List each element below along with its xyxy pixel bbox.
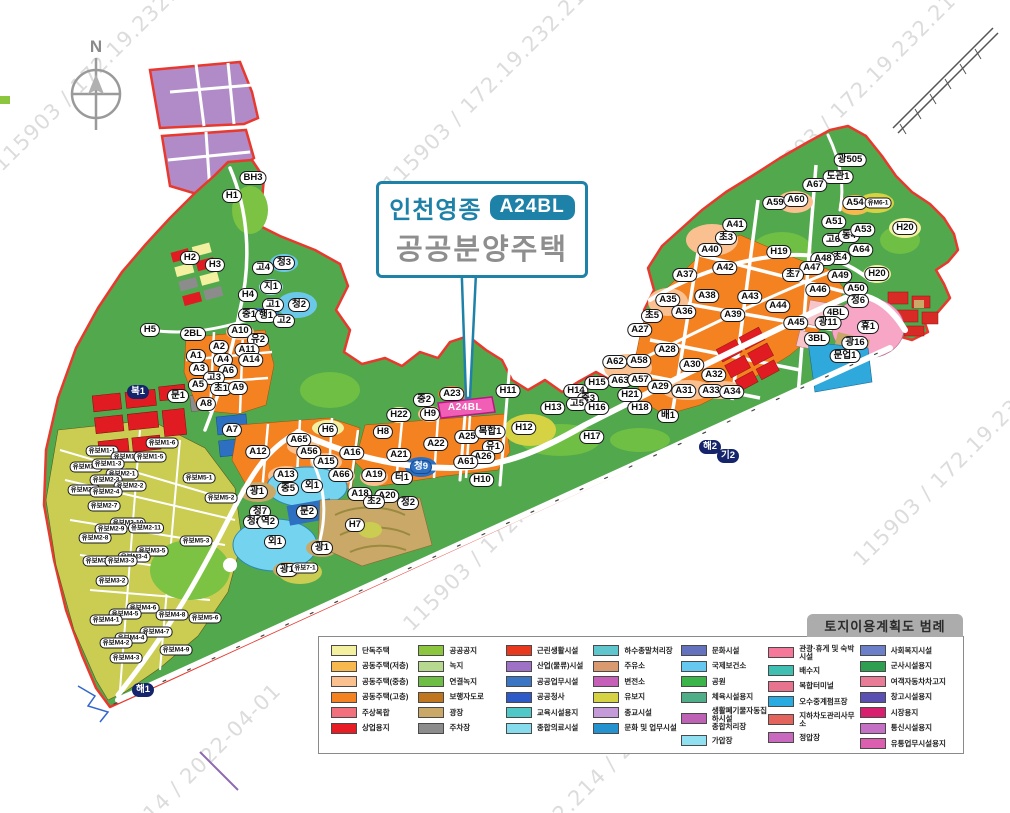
legend-item: 문화시설 bbox=[681, 645, 768, 656]
legend-swatch bbox=[860, 676, 886, 687]
legend-label: 생활폐기물자동집하시설 종합처리장 bbox=[712, 707, 768, 731]
legend-item: 종합의료시설 bbox=[506, 723, 593, 734]
legend-columns: 단독주택공동주택(저층)공동주택(중층)공동주택(고층)주상복합상업용지공공공지… bbox=[331, 645, 963, 749]
legend-swatch bbox=[768, 647, 794, 658]
legend-swatch bbox=[506, 707, 532, 718]
legend-label: 단독주택 bbox=[362, 647, 390, 655]
legend-label: 군사시설용지 bbox=[891, 662, 932, 670]
callout-region: 인천영종 bbox=[389, 190, 481, 225]
legend-column: 관광·휴게 및 숙박시설배수지복합터미널오수중계펌프장지하차도관리사무소정압장 bbox=[768, 645, 859, 749]
legend-item: 공공공지 bbox=[418, 645, 505, 656]
legend-swatch bbox=[860, 645, 886, 656]
legend-item: 공동주택(중층) bbox=[331, 676, 418, 687]
legend-label: 녹지 bbox=[449, 662, 463, 670]
legend-item: 관광·휴게 및 숙박시설 bbox=[768, 645, 859, 661]
legend-item: 오수중계펌프장 bbox=[768, 696, 859, 707]
legend-label: 시장용지 bbox=[891, 709, 919, 717]
legend-swatch bbox=[593, 707, 619, 718]
legend-box: 토지이용계획도 범례 단독주택공동주택(저층)공동주택(중층)공동주택(고층)주… bbox=[318, 636, 964, 754]
legend-label: 국제보건소 bbox=[712, 662, 747, 670]
legend-item: 배수지 bbox=[768, 665, 859, 676]
legend-label: 하수종말처리장 bbox=[624, 647, 672, 655]
legend-label: 공공공지 bbox=[449, 647, 477, 655]
legend-item: 공공업무시설 bbox=[506, 676, 593, 687]
legend-swatch bbox=[768, 681, 794, 692]
legend-item: 국제보건소 bbox=[681, 661, 768, 672]
legend-label: 복합터미널 bbox=[799, 682, 834, 690]
legend-swatch bbox=[681, 692, 707, 703]
legend-column: 근린생활시설산업(물류)시설공공업무시설공공청사교육시설용지종합의료시설 bbox=[506, 645, 593, 749]
legend-item: 산업(물류)시설 bbox=[506, 661, 593, 672]
legend-item: 공동주택(저층) bbox=[331, 661, 418, 672]
legend-item: 주차장 bbox=[418, 723, 505, 734]
legend-label: 통신시설용지 bbox=[891, 724, 932, 732]
legend-item: 유보지 bbox=[593, 692, 680, 703]
legend-label: 사회복지시설 bbox=[891, 647, 932, 655]
legend-swatch bbox=[506, 676, 532, 687]
legend-item: 여객자동차차고지 bbox=[860, 676, 963, 687]
legend-column: 단독주택공동주택(저층)공동주택(중층)공동주택(고층)주상복합상업용지 bbox=[331, 645, 418, 749]
callout-title: 공공분양주택 bbox=[387, 226, 577, 268]
land-use-map-page: 115903 / 172.19.232.214 / 2022-04-011159… bbox=[0, 0, 1010, 813]
legend-item: 공동주택(고층) bbox=[331, 692, 418, 703]
legend-swatch bbox=[418, 707, 444, 718]
legend-swatch bbox=[860, 661, 886, 672]
legend-label: 창고시설용지 bbox=[891, 693, 932, 701]
legend-label: 공원 bbox=[712, 678, 726, 686]
legend-item: 지하차도관리사무소 bbox=[768, 712, 859, 728]
legend-swatch bbox=[593, 692, 619, 703]
legend-swatch bbox=[768, 665, 794, 676]
legend-label: 근린생활시설 bbox=[537, 647, 578, 655]
legend-item: 광장 bbox=[418, 707, 505, 718]
legend-label: 공공청사 bbox=[537, 693, 565, 701]
legend-item: 정압장 bbox=[768, 732, 859, 743]
legend-item: 단독주택 bbox=[331, 645, 418, 656]
legend-item: 보행자도로 bbox=[418, 692, 505, 703]
legend-item: 교육시설용지 bbox=[506, 707, 593, 718]
legend-item: 공원 bbox=[681, 676, 768, 687]
legend-swatch bbox=[506, 692, 532, 703]
legend-item: 변전소 bbox=[593, 676, 680, 687]
legend-label: 주유소 bbox=[624, 662, 645, 670]
legend-swatch bbox=[418, 723, 444, 734]
legend-label: 주차장 bbox=[449, 724, 470, 732]
legend-label: 종합의료시설 bbox=[537, 724, 578, 732]
legend-swatch bbox=[768, 732, 794, 743]
legend-item: 상업용지 bbox=[331, 723, 418, 734]
legend-swatch bbox=[331, 676, 357, 687]
legend-label: 가압장 bbox=[712, 737, 733, 745]
legend-swatch bbox=[768, 696, 794, 707]
legend-item: 통신시설용지 bbox=[860, 723, 963, 734]
legend-swatch bbox=[506, 645, 532, 656]
legend-item: 하수종말처리장 bbox=[593, 645, 680, 656]
legend-swatch bbox=[593, 676, 619, 687]
legend-label: 유보지 bbox=[624, 693, 645, 701]
legend-item: 시장용지 bbox=[860, 707, 963, 718]
legend-item: 연결녹지 bbox=[418, 676, 505, 687]
legend-label: 오수중계펌프장 bbox=[799, 698, 847, 706]
legend-swatch bbox=[331, 707, 357, 718]
legend-swatch bbox=[860, 723, 886, 734]
legend-swatch bbox=[418, 676, 444, 687]
legend-item: 공공청사 bbox=[506, 692, 593, 703]
legend-swatch bbox=[593, 723, 619, 734]
legend-label: 유통업무시설용지 bbox=[891, 740, 946, 748]
legend-swatch bbox=[593, 661, 619, 672]
legend-item: 군사시설용지 bbox=[860, 661, 963, 672]
legend-swatch bbox=[331, 723, 357, 734]
legend-label: 공동주택(고층) bbox=[362, 693, 408, 701]
legend-label: 배수지 bbox=[799, 667, 820, 675]
legend-item: 생활폐기물자동집하시설 종합처리장 bbox=[681, 707, 768, 731]
legend-label: 상업용지 bbox=[362, 724, 390, 732]
legend-column: 하수종말처리장주유소변전소유보지종교시설문화 및 업무시설 bbox=[593, 645, 680, 749]
legend-item: 사회복지시설 bbox=[860, 645, 963, 656]
legend-swatch bbox=[860, 692, 886, 703]
legend-label: 보행자도로 bbox=[449, 693, 484, 701]
legend-swatch bbox=[418, 645, 444, 656]
legend-swatch bbox=[593, 645, 619, 656]
legend-label: 문화 및 업무시설 bbox=[624, 724, 676, 732]
legend-swatch bbox=[860, 738, 886, 749]
legend-swatch bbox=[681, 645, 707, 656]
legend-label: 문화시설 bbox=[712, 647, 740, 655]
legend-column: 문화시설국제보건소공원체육시설용지생활폐기물자동집하시설 종합처리장가압장 bbox=[681, 645, 768, 749]
legend-swatch bbox=[331, 645, 357, 656]
legend-label: 주상복합 bbox=[362, 709, 390, 717]
legend-label: 관광·휴게 및 숙박시설 bbox=[799, 645, 859, 661]
legend-item: 근린생활시설 bbox=[506, 645, 593, 656]
legend-swatch bbox=[768, 714, 794, 725]
legend-item: 체육시설용지 bbox=[681, 692, 768, 703]
legend-item: 종교시설 bbox=[593, 707, 680, 718]
legend-item: 복합터미널 bbox=[768, 681, 859, 692]
legend-label: 변전소 bbox=[624, 678, 645, 686]
callout-block-badge: A24BL bbox=[490, 195, 575, 220]
legend-swatch bbox=[681, 713, 707, 724]
legend-item: 문화 및 업무시설 bbox=[593, 723, 680, 734]
legend-label: 여객자동차차고지 bbox=[891, 678, 946, 686]
legend-label: 연결녹지 bbox=[449, 678, 477, 686]
legend-title: 토지이용계획도 범례 bbox=[807, 614, 963, 637]
legend-label: 공동주택(중층) bbox=[362, 678, 408, 686]
legend-label: 교육시설용지 bbox=[537, 709, 578, 717]
legend-swatch bbox=[681, 735, 707, 746]
legend-label: 지하차도관리사무소 bbox=[799, 712, 859, 728]
legend-swatch bbox=[418, 661, 444, 672]
legend-swatch bbox=[506, 661, 532, 672]
callout-box: 인천영종 A24BL 공공분양주택 bbox=[376, 181, 588, 278]
legend-label: 체육시설용지 bbox=[712, 693, 753, 701]
legend-label: 광장 bbox=[449, 709, 463, 717]
legend-label: 공동주택(저층) bbox=[362, 662, 408, 670]
legend-item: 창고시설용지 bbox=[860, 692, 963, 703]
legend-swatch bbox=[506, 723, 532, 734]
legend-label: 산업(물류)시설 bbox=[537, 662, 583, 670]
legend-label: 정압장 bbox=[799, 734, 820, 742]
legend-item: 녹지 bbox=[418, 661, 505, 672]
legend-item: 주유소 bbox=[593, 661, 680, 672]
legend-swatch bbox=[681, 676, 707, 687]
legend-label: 종교시설 bbox=[624, 709, 652, 717]
legend-swatch bbox=[331, 661, 357, 672]
legend-column: 사회복지시설군사시설용지여객자동차차고지창고시설용지시장용지통신시설용지유통업무… bbox=[860, 645, 963, 749]
legend-column: 공공공지녹지연결녹지보행자도로광장주차장 bbox=[418, 645, 505, 749]
legend-swatch bbox=[418, 692, 444, 703]
legend-item: 주상복합 bbox=[331, 707, 418, 718]
legend-label: 공공업무시설 bbox=[537, 678, 578, 686]
legend-swatch bbox=[860, 707, 886, 718]
legend-swatch bbox=[331, 692, 357, 703]
legend-swatch bbox=[681, 661, 707, 672]
legend-item: 가압장 bbox=[681, 735, 768, 746]
legend-item: 유통업무시설용지 bbox=[860, 738, 963, 749]
